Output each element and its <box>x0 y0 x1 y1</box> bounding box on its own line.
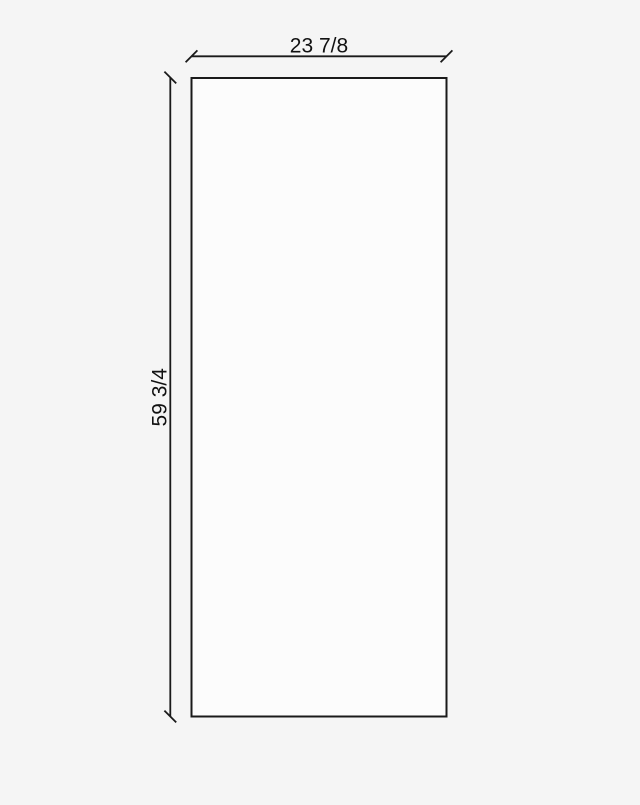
svg-text:23 7/8: 23 7/8 <box>290 35 348 58</box>
svg-text:59 3/4: 59 3/4 <box>149 368 172 427</box>
